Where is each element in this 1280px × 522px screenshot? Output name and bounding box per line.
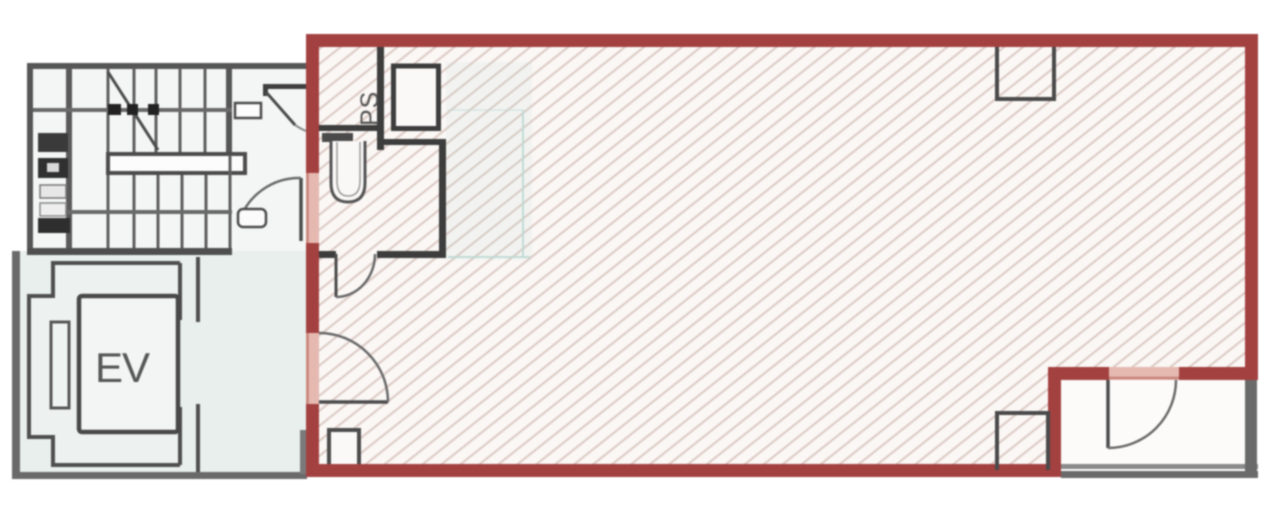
svg-text:EV: EV [95, 344, 150, 391]
svg-text:PS: PS [356, 91, 384, 126]
